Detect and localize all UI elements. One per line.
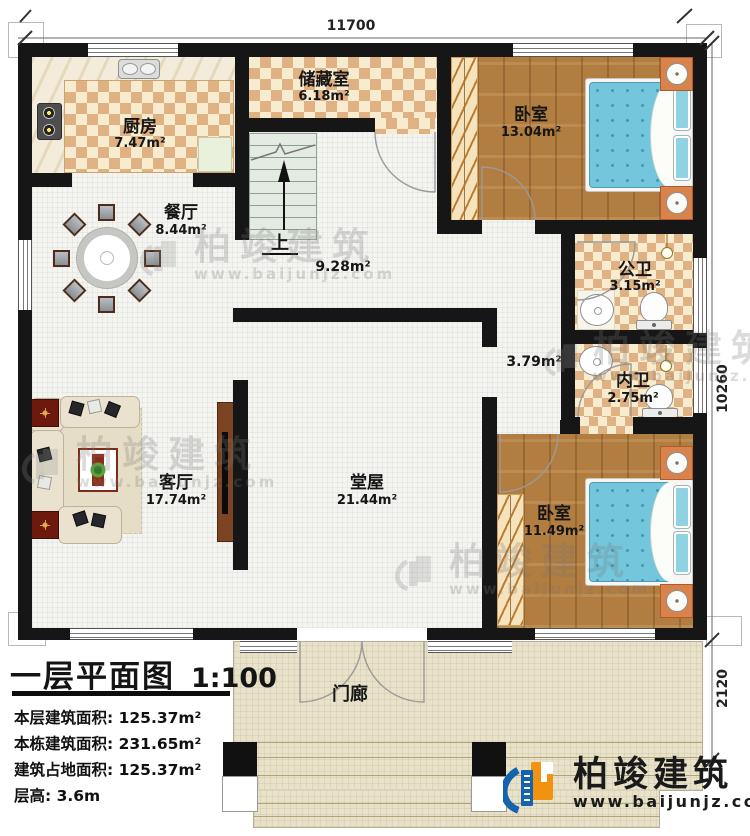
room-area-storage: 6.18m² — [279, 89, 369, 104]
door-arc-storage — [375, 132, 435, 192]
brand-name: 柏竣建筑 — [573, 757, 750, 793]
room-area-dining: 8.44m² — [136, 223, 226, 238]
plan-title: 一层平面图 — [10, 651, 175, 696]
room-label-inner-bath: 内卫 — [588, 372, 678, 390]
dimension-top: 11700 — [311, 18, 391, 34]
room-area-living: 17.74m² — [131, 493, 221, 508]
stair-break-line — [251, 144, 315, 160]
corridor-area: 3.79m² — [489, 355, 579, 370]
title-block-line-1: 本层建筑面积: 125.37m² — [14, 706, 201, 728]
room-area-public-bath: 3.15m² — [590, 279, 680, 294]
dimension-porch-depth: 2120 — [715, 672, 731, 708]
title-block-heading: 一层平面图 1:100 — [10, 651, 277, 696]
title-underline — [12, 691, 230, 696]
floor-plan-page: 厨房 7.47m² 储藏室 6.18m² 卧室 13.04m² 餐厅 8.44m… — [0, 0, 750, 836]
dimension-right: 10260 — [715, 367, 731, 413]
room-label-dining: 餐厅 — [136, 204, 226, 222]
stair-arrow-head — [278, 160, 290, 182]
title-block-line-4: 层高: 3.6m — [14, 784, 100, 806]
title-block-line-2: 本栋建筑面积: 231.65m² — [14, 732, 201, 754]
room-label-bedroom-bottom: 卧室 — [509, 505, 599, 523]
door-arc-bedroom-bottom — [500, 434, 558, 492]
room-label-living: 客厅 — [131, 474, 221, 492]
stair-up-label: 上 — [262, 235, 298, 255]
room-label-kitchen: 厨房 — [95, 118, 185, 136]
stair-hall-area: 9.28m² — [298, 260, 388, 275]
room-label-storage: 储藏室 — [279, 71, 369, 89]
brand-logo-icon — [503, 752, 565, 816]
room-label-bedroom-top: 卧室 — [486, 106, 576, 124]
brand-url: www.baijunjz.com — [573, 793, 750, 811]
dim-tick — [20, 10, 31, 22]
room-area-bedroom-bottom: 11.49m² — [509, 524, 599, 539]
room-area-bedroom-top: 13.04m² — [486, 125, 576, 140]
room-area-inner-bath: 2.75m² — [588, 391, 678, 406]
brand-lockup: 柏竣建筑 www.baijunjz.com — [503, 752, 750, 816]
room-label-public-bath: 公卫 — [590, 261, 680, 279]
dim-tick — [677, 9, 692, 23]
room-label-hall: 堂屋 — [322, 474, 412, 492]
room-label-porch: 门廊 — [305, 686, 395, 704]
plan-scale: 1:100 — [191, 663, 277, 694]
room-area-hall: 21.44m² — [322, 493, 412, 508]
door-arc-bedroom-top — [482, 167, 535, 220]
title-block-line-3: 建筑占地面积: 125.37m² — [14, 758, 201, 780]
room-area-kitchen: 7.47m² — [95, 136, 185, 151]
